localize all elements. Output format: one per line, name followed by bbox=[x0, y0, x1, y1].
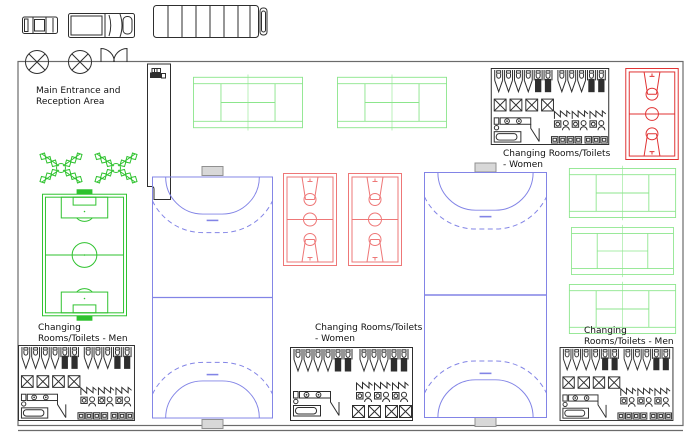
handball-goal-icon bbox=[202, 167, 223, 176]
men-br-label-line1: Changing bbox=[584, 326, 627, 336]
parking-vehicles bbox=[23, 6, 268, 38]
van-icon bbox=[69, 14, 135, 38]
tennis-court-icon bbox=[569, 166, 675, 220]
tennis-court-icon bbox=[337, 75, 446, 131]
handball-court-icon bbox=[424, 172, 546, 417]
double-door-icon bbox=[101, 49, 127, 63]
men-br-label-line2: Rooms/Toilets - Men bbox=[584, 337, 674, 347]
handball-goal-icon bbox=[475, 163, 496, 172]
changing-room-icon bbox=[291, 348, 413, 421]
handball-court-icon bbox=[152, 177, 272, 418]
site-boundary bbox=[18, 62, 683, 431]
changing-room-icon bbox=[560, 347, 673, 420]
tree-icon bbox=[40, 153, 82, 183]
women-top-label-line2: - Women bbox=[503, 160, 543, 170]
tennis-court-icon bbox=[572, 225, 674, 277]
handball-goal-icon bbox=[475, 418, 496, 427]
tree-icon bbox=[95, 153, 137, 183]
tennis-courts-right bbox=[569, 166, 675, 336]
men-bl-label-line2: Rooms/Toilets - Men bbox=[38, 334, 128, 344]
men-bl-label-line1: Changing bbox=[38, 323, 81, 333]
football-pitch-icon bbox=[42, 189, 126, 320]
changing-room-men-bottom-left: Changing Rooms/Toilets - Men bbox=[19, 323, 135, 421]
handball-court-2 bbox=[424, 163, 546, 427]
handball-goal-icon bbox=[202, 420, 223, 429]
floor-plan: Main Entrance and Reception Area bbox=[0, 0, 685, 435]
tennis-court-icon bbox=[193, 75, 302, 131]
trees bbox=[40, 153, 137, 183]
women-bm-label-line2: - Women bbox=[315, 334, 355, 344]
changing-room-icon bbox=[19, 345, 135, 420]
basketball-court-icon bbox=[284, 174, 337, 266]
changing-room-icon bbox=[491, 68, 608, 144]
floor-plan-canvas: Main Entrance and Reception Area bbox=[0, 0, 685, 435]
changing-room-women-bottom-mid: Changing Rooms/Toilets - Women bbox=[291, 323, 423, 421]
basketball-court-icon bbox=[349, 174, 402, 266]
car-icon bbox=[23, 17, 58, 34]
reception-desk bbox=[148, 64, 171, 200]
changing-room-women-top: Changing Rooms/Toilets - Women bbox=[491, 68, 610, 170]
reception-register-icon bbox=[151, 69, 166, 79]
entrance-label-line1: Main Entrance and bbox=[36, 86, 120, 96]
basketball-court-icon bbox=[626, 68, 678, 159]
handball-court-1 bbox=[152, 167, 272, 429]
changing-room-men-bottom-right: Changing Rooms/Toilets - Men bbox=[560, 326, 674, 421]
entrance-label-line2: Reception Area bbox=[36, 97, 104, 107]
women-bm-label-line1: Changing Rooms/Toilets bbox=[315, 323, 423, 333]
women-top-label-line1: Changing Rooms/Toilets bbox=[503, 149, 611, 159]
basketball-courts-mid bbox=[284, 174, 402, 266]
tennis-courts-top bbox=[193, 75, 446, 131]
bus-icon bbox=[154, 6, 268, 38]
